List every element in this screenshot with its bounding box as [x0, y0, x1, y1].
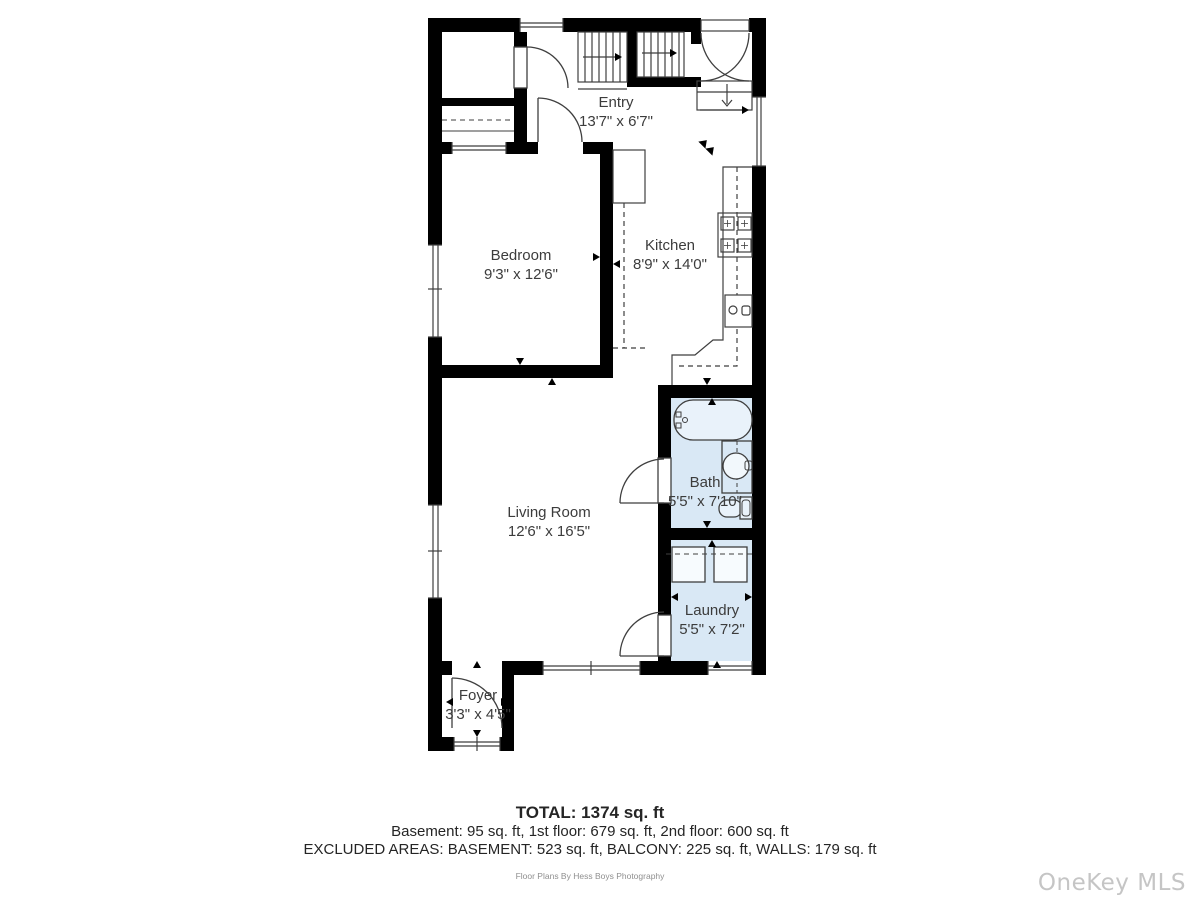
- room-dims: 9'3" x 12'6": [484, 265, 558, 284]
- refrigerator: [613, 150, 645, 203]
- room-dims: 12'6" x 16'5": [507, 522, 590, 541]
- living-room-window-south: [543, 661, 640, 675]
- room-dims: 13'7" x 6'7": [579, 112, 653, 131]
- room-dims: 3'3" x 4'5": [445, 705, 511, 724]
- room-dims: 8'9" x 14'0": [633, 255, 707, 274]
- room-label-kitchen: Kitchen 8'9" x 14'0": [633, 236, 707, 274]
- bedroom-door: [538, 98, 582, 142]
- floor-plan-drawing: [0, 0, 1200, 900]
- bedroom-window: [428, 245, 442, 337]
- room-label-bedroom: Bedroom 9'3" x 12'6": [484, 246, 558, 284]
- photography-credit: Floor Plans By Hess Boys Photography: [0, 871, 1180, 881]
- room-name: Laundry: [679, 601, 745, 620]
- room-name: Living Room: [507, 503, 590, 522]
- room-label-bath: Bath 5'5" x 7'10": [668, 473, 742, 511]
- bath-door: [620, 458, 671, 503]
- room-label-laundry: Laundry 5'5" x 7'2": [679, 601, 745, 639]
- bedroom-closet: [442, 120, 514, 131]
- closet-door: [514, 47, 568, 88]
- entry-window-north: [520, 18, 563, 32]
- room-dims: 5'5" x 7'10": [668, 492, 742, 511]
- dryer: [714, 547, 747, 582]
- foyer-window-south: [454, 737, 500, 751]
- room-name: Bedroom: [484, 246, 558, 265]
- excluded-areas: EXCLUDED AREAS: BASEMENT: 523 sq. ft, BA…: [0, 841, 1180, 859]
- room-label-entry: Entry 13'7" x 6'7": [579, 93, 653, 131]
- balcony-double-door: [701, 33, 749, 81]
- total-area: TOTAL: 1374 sq. ft: [0, 803, 1180, 823]
- onekey-mls-watermark: OneKey MLS: [1038, 870, 1186, 896]
- room-name: Bath: [668, 473, 742, 492]
- stair-arrow-icon: [615, 53, 622, 61]
- balcony-door-threshold: [701, 20, 749, 31]
- step-arrow-icon: [742, 106, 749, 114]
- stair-arrow-icon: [670, 49, 677, 57]
- floor-plan-page: Entry 13'7" x 6'7" Bedroom 9'3" x 12'6" …: [0, 0, 1200, 900]
- entry-steps: [697, 81, 752, 114]
- room-dims: 5'5" x 7'2": [679, 620, 745, 639]
- room-label-foyer: Foyer 3'3" x 4'5": [445, 686, 511, 724]
- washer: [672, 547, 705, 582]
- room-name: Kitchen: [633, 236, 707, 255]
- kitchen-window-east: [752, 97, 766, 166]
- living-room-window-west: [428, 505, 442, 598]
- room-name: Foyer: [445, 686, 511, 705]
- closet-sliding-doors: [452, 142, 506, 154]
- room-name: Entry: [579, 93, 653, 112]
- kitchen-sink: [725, 295, 752, 327]
- room-label-living-room: Living Room 12'6" x 16'5": [507, 503, 590, 541]
- bathtub: [674, 400, 752, 440]
- laundry-door: [620, 612, 671, 656]
- area-summary: TOTAL: 1374 sq. ft Basement: 95 sq. ft, …: [0, 803, 1180, 881]
- kitchen-counter: [672, 167, 752, 385]
- floor-areas: Basement: 95 sq. ft, 1st floor: 679 sq. …: [0, 823, 1180, 841]
